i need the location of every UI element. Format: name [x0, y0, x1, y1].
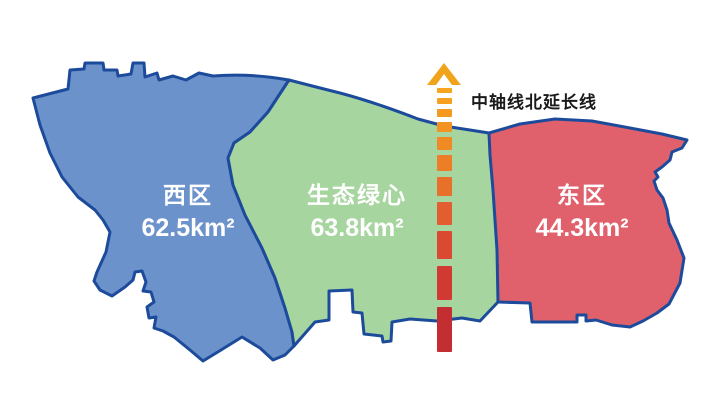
axis-dash	[437, 307, 452, 352]
axis-dash	[437, 137, 452, 150]
axis-dash	[437, 122, 452, 132]
axis-dash	[437, 98, 452, 104]
axis-dash-line	[437, 88, 452, 352]
up-arrow-icon	[427, 63, 461, 85]
axis-dash	[437, 155, 452, 171]
axis-dash	[437, 231, 452, 259]
map-svg	[0, 0, 718, 407]
east-district-shape	[489, 119, 687, 327]
axis-dash	[437, 109, 452, 117]
axis-dash	[437, 266, 452, 300]
planning-map: 西区 62.5km² 生态绿心 63.8km² 东区 44.3km² 中轴线北延…	[0, 0, 718, 407]
axis-dash	[437, 177, 452, 196]
axis-label: 中轴线北延长线	[471, 88, 597, 113]
axis-dash	[437, 202, 452, 225]
axis-dash	[437, 88, 452, 93]
